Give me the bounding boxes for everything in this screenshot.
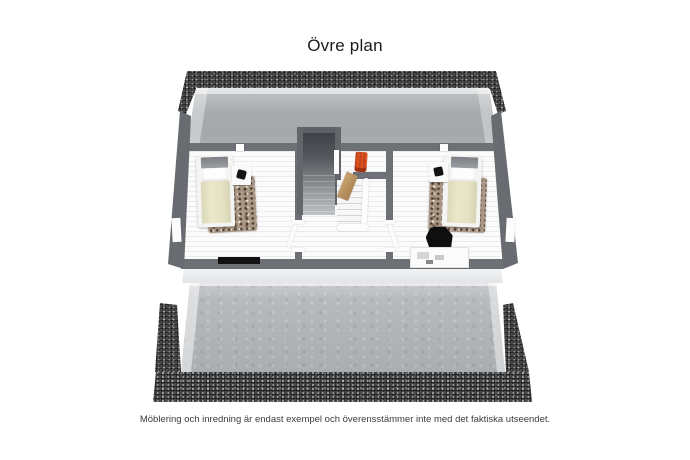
attic-wall-top-highlight (186, 88, 499, 147)
front-roof-gable-left (180, 283, 507, 372)
floor-plan (0, 0, 690, 460)
table-lamp-left (236, 169, 247, 180)
nightstand-left (232, 165, 251, 185)
gable-window-left (171, 218, 181, 242)
bed-right-pillow (450, 168, 475, 182)
window-notch-left (236, 144, 244, 151)
bench-left (218, 257, 260, 264)
attic-slope-back (186, 88, 499, 147)
wall-bedroom-left-lower (295, 250, 302, 264)
door-jamb-right-bottom (383, 248, 395, 252)
desk-item-1 (417, 252, 429, 259)
front-roof-slope (180, 283, 507, 372)
front-wall-band (182, 269, 503, 283)
desk-right (410, 247, 469, 268)
attic-gable-highlight-right (186, 88, 499, 147)
gable-window-right (505, 218, 515, 242)
wall-bedroom-right-upper (386, 151, 393, 224)
bed-left (196, 155, 235, 227)
stair-newel-post (334, 150, 339, 174)
bed-right-headboard (451, 157, 478, 169)
front-roof-gable-right (180, 283, 507, 372)
desk-item-3 (426, 260, 433, 264)
floor-plan-page: Övre plan (0, 0, 690, 460)
disclaimer-text: Möblering och inredning är endast exempe… (0, 414, 690, 425)
nightstand-right (429, 162, 448, 182)
eaves-tiles-left (153, 303, 183, 373)
bed-right-duvet (447, 181, 477, 224)
bed-left-pillow (202, 168, 227, 182)
stair-steps-lower (303, 175, 335, 215)
stair-railing-curve (337, 224, 369, 231)
window-notch-right (440, 144, 448, 151)
door-jamb-left-bottom (292, 248, 304, 252)
table-lamp-right (433, 166, 444, 177)
wall-landing-room (352, 172, 393, 179)
eaves-tiles-bottom (152, 372, 533, 403)
bed-left-duvet (201, 181, 231, 224)
attic-gable-highlight-left (186, 88, 499, 147)
front-roof-top-edge (180, 283, 507, 372)
top-wall (184, 143, 499, 151)
wall-bedroom-right-lower (386, 250, 393, 264)
accent-chair (354, 152, 367, 173)
desk-item-2 (435, 255, 444, 260)
